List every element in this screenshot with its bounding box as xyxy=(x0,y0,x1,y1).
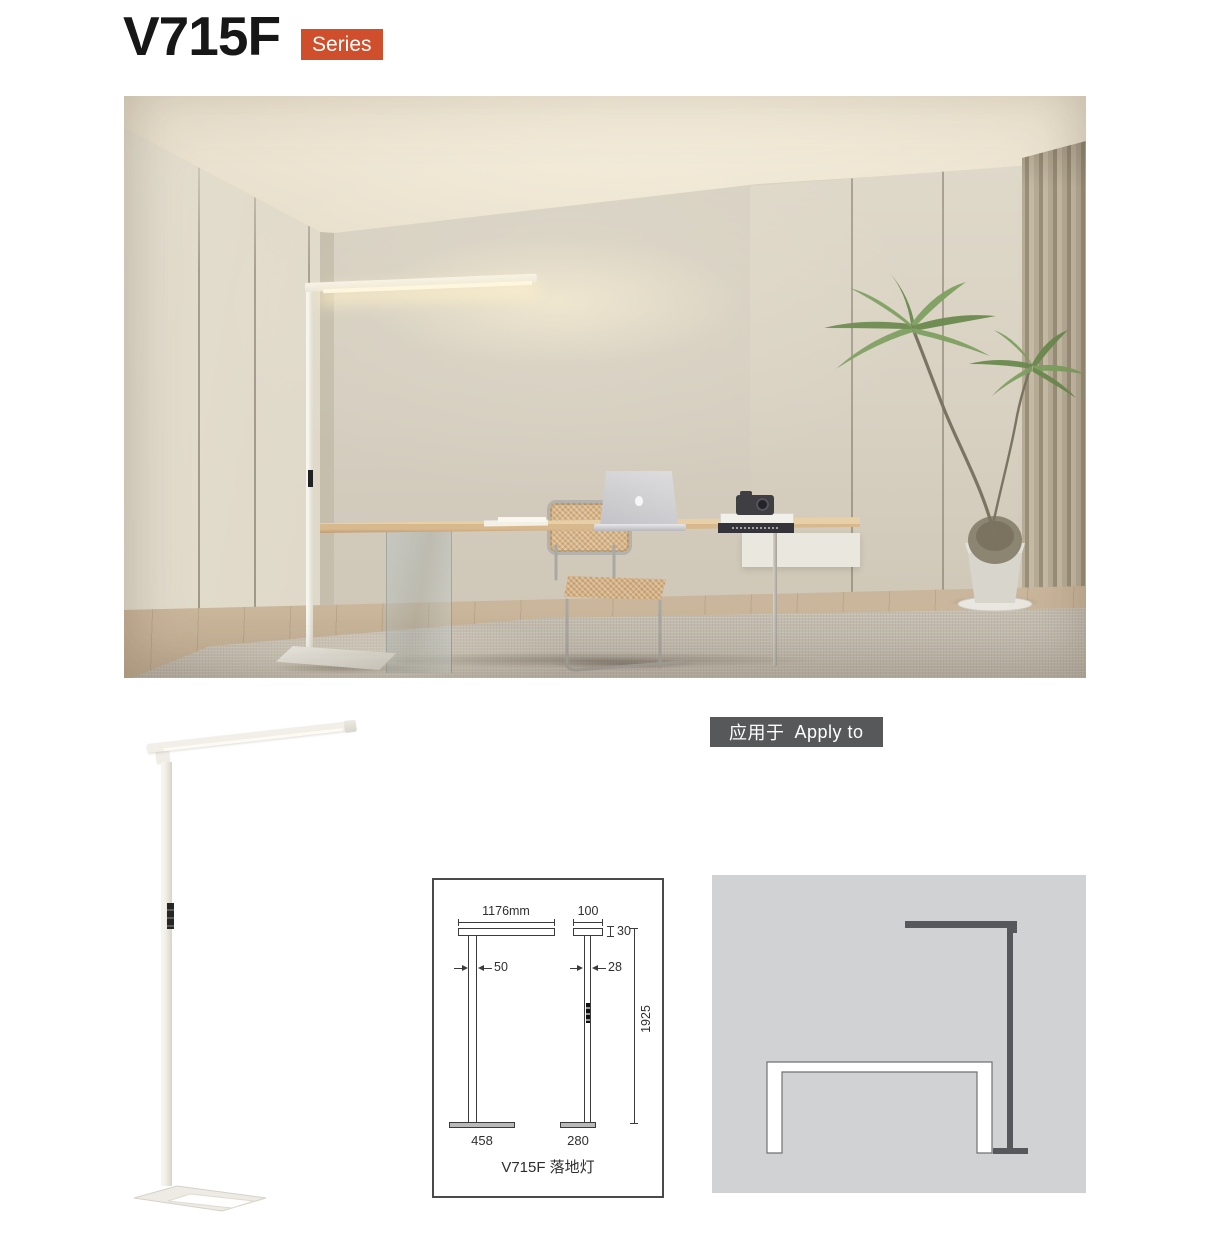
dim-line xyxy=(573,922,603,923)
dim-tick xyxy=(630,1123,638,1124)
photo-vignette xyxy=(124,96,1086,678)
application-diagram xyxy=(712,875,1086,1193)
dim-line xyxy=(458,922,555,923)
catalog-page: V715F Series xyxy=(0,0,1216,1245)
apply-to-zh: 应用于 xyxy=(729,719,785,745)
dim-tick xyxy=(602,919,603,926)
dim-line-vertical xyxy=(634,928,635,1124)
dim-pole-width-front: 50 xyxy=(494,960,508,974)
front-pole xyxy=(468,935,477,1124)
dim-head-width-side: 100 xyxy=(558,904,618,918)
diagram-lamp-head xyxy=(905,921,1017,928)
dim-total-height: 1925 xyxy=(639,997,653,1041)
desk-outline xyxy=(712,875,1086,1193)
diagram-lamp-pole xyxy=(1007,928,1013,1150)
page-title: V715F xyxy=(123,4,280,68)
arrow-tail xyxy=(484,968,492,969)
dim-tick xyxy=(554,919,555,926)
front-base xyxy=(449,1122,515,1128)
side-base xyxy=(560,1122,596,1128)
side-pole xyxy=(584,935,591,1124)
room-photo xyxy=(124,96,1086,678)
series-badge: Series xyxy=(301,29,383,60)
side-touch-control xyxy=(586,1003,590,1023)
lamp-touch-control xyxy=(167,903,174,929)
apply-to-en: Apply to xyxy=(795,722,864,743)
drawing-caption: V715F 落地灯 xyxy=(434,1156,662,1177)
lamp-head xyxy=(147,721,355,753)
dim-tick xyxy=(573,919,574,926)
dim-pole-width-side: 28 xyxy=(608,960,622,974)
arrow-right-icon xyxy=(462,965,468,971)
dim-tick xyxy=(458,919,459,926)
lamp-pole xyxy=(161,762,172,1186)
arrow-tail xyxy=(598,968,606,969)
diagram-lamp-base xyxy=(993,1148,1028,1154)
lamp-base xyxy=(125,1160,385,1220)
dim-head-width-front: 1176mm xyxy=(444,904,568,918)
dim-serif xyxy=(607,936,614,937)
arrow-right-icon xyxy=(577,965,583,971)
dim-head-height-side: 30 xyxy=(617,924,631,938)
dimension-drawing: 1176mm 50 458 100 30 28 280 xyxy=(432,878,664,1198)
dim-base-width-side: 280 xyxy=(560,1133,596,1148)
apply-to-badge: 应用于Apply to xyxy=(710,717,883,747)
dim-tick xyxy=(630,928,638,929)
dim-base-width-front: 458 xyxy=(452,1133,512,1148)
